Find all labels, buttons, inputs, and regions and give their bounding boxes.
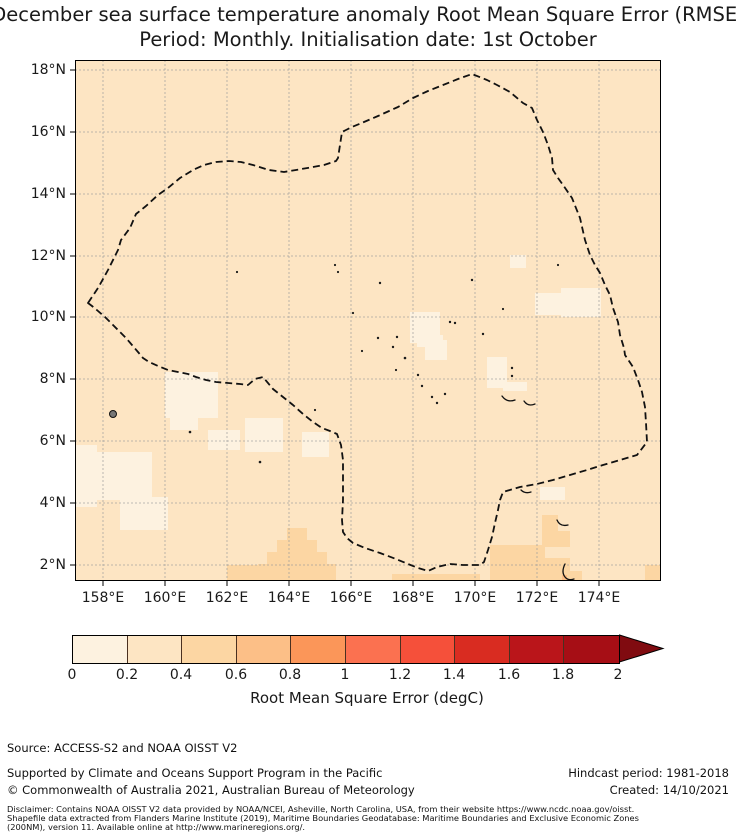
colorbar-extend-arrow bbox=[619, 634, 665, 663]
x-tick-label: 170°E bbox=[445, 589, 505, 607]
colorbar-tick-label: 2 bbox=[593, 667, 643, 683]
x-tick-label: 168°E bbox=[383, 589, 443, 607]
colorbar-tick-label: 1 bbox=[320, 667, 370, 683]
x-tick-label: 172°E bbox=[507, 589, 567, 607]
colorbar bbox=[72, 635, 620, 664]
disclaimer-line-3: (200NM), version 11. Available online at… bbox=[7, 822, 305, 832]
pohnpei-island-dot bbox=[110, 411, 117, 418]
hindcast-period-text: Hindcast period: 1981-2018 bbox=[568, 766, 729, 780]
colorbar-segment bbox=[291, 636, 346, 663]
colorbar-segment bbox=[455, 636, 510, 663]
colorbar-segment bbox=[510, 636, 565, 663]
colorbar-tick-label: 1.2 bbox=[375, 667, 425, 683]
figure: December sea surface temperature anomaly… bbox=[0, 0, 736, 839]
y-tick-label: 4°N bbox=[22, 494, 66, 512]
colorbar-segment bbox=[73, 636, 128, 663]
created-date-text: Created: 14/10/2021 bbox=[610, 783, 729, 797]
colorbar-tick-label: 1.4 bbox=[429, 667, 479, 683]
x-tick-label: 166°E bbox=[321, 589, 381, 607]
map-canvas bbox=[75, 60, 661, 581]
colorbar-tick-label: 1.6 bbox=[484, 667, 534, 683]
colorbar-segment bbox=[237, 636, 292, 663]
colorbar-segment bbox=[346, 636, 401, 663]
colorbar-tick-label: 0.4 bbox=[156, 667, 206, 683]
colorbar-segment bbox=[182, 636, 237, 663]
colorbar-segment bbox=[128, 636, 183, 663]
source-text: Source: ACCESS-S2 and NOAA OISST V2 bbox=[7, 741, 237, 755]
y-tick-label: 18°N bbox=[22, 61, 66, 79]
figure-subtitle: Period: Monthly. Initialisation date: 1s… bbox=[139, 28, 597, 51]
x-tick-label: 160°E bbox=[135, 589, 195, 607]
y-tick-label: 2°N bbox=[22, 556, 66, 574]
y-tick-label: 6°N bbox=[22, 432, 66, 450]
x-tick-label: 158°E bbox=[73, 589, 133, 607]
colorbar-tick-label: 0 bbox=[47, 667, 97, 683]
map bbox=[75, 60, 661, 581]
colorbar-tick-label: 0.2 bbox=[102, 667, 152, 683]
x-tick-label: 162°E bbox=[197, 589, 257, 607]
x-tick-label: 174°E bbox=[569, 589, 629, 607]
y-tick-label: 8°N bbox=[22, 370, 66, 388]
colorbar-segment bbox=[564, 636, 619, 663]
figure-title: December sea surface temperature anomaly… bbox=[0, 3, 736, 26]
colorbar-axis-label: Root Mean Square Error (degC) bbox=[167, 689, 567, 707]
colorbar-tick-label: 1.8 bbox=[538, 667, 588, 683]
y-tick-label: 14°N bbox=[22, 185, 66, 203]
copyright-text: © Commonwealth of Australia 2021, Austra… bbox=[7, 783, 415, 797]
colorbar-tick-label: 0.8 bbox=[265, 667, 315, 683]
colorbar-segment bbox=[401, 636, 456, 663]
support-text: Supported by Climate and Oceans Support … bbox=[7, 766, 382, 780]
y-tick-label: 16°N bbox=[22, 123, 66, 141]
x-tick-label: 164°E bbox=[259, 589, 319, 607]
y-tick-label: 12°N bbox=[22, 247, 66, 265]
colorbar-tick-label: 0.6 bbox=[211, 667, 261, 683]
y-tick-label: 10°N bbox=[22, 308, 66, 326]
